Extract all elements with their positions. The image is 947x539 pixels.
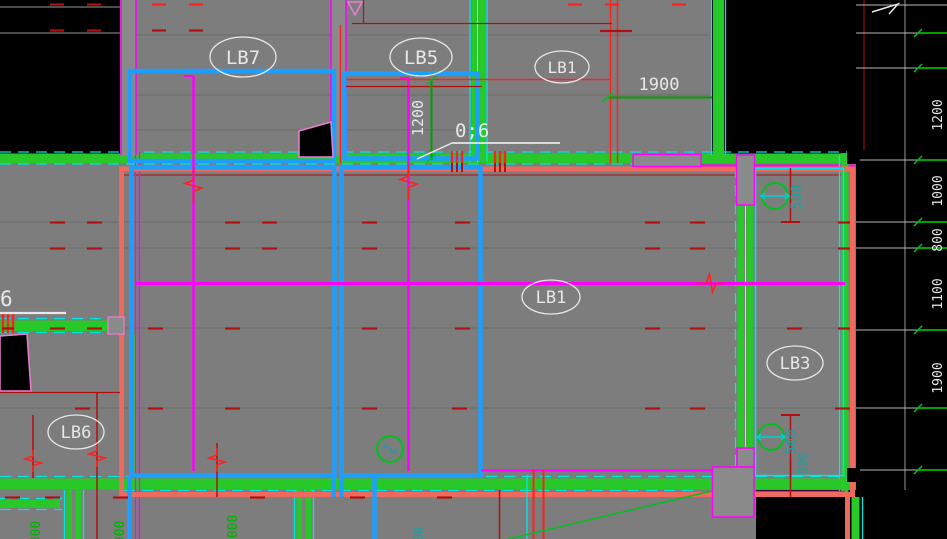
- margin-dim-0: 1200: [931, 99, 946, 130]
- margin-dim-3: 1100: [931, 278, 946, 309]
- bottom-dim-1: 1000: [113, 521, 128, 539]
- right-margin-dims: 1200 1000 800 1100 1900: [856, 4, 947, 474]
- bottom-dim-2: 1000: [226, 515, 241, 539]
- label-lb5: LB5: [404, 47, 438, 69]
- wall-v-topright: [713, 0, 724, 155]
- margin-dim-2: 800: [931, 228, 946, 251]
- slab-main: [0, 155, 856, 490]
- cad-canvas[interactable]: 1900 1200 1200 1000 800 1100 1900: [0, 0, 947, 539]
- label-lb1-mid: LB1: [536, 288, 567, 308]
- wall-v-right: [841, 153, 849, 497]
- note-left: 6: [0, 287, 13, 311]
- bottom-dim-0: 1000: [29, 521, 44, 539]
- label-lb6: LB6: [61, 423, 92, 443]
- label-lb7: LB7: [226, 47, 260, 69]
- wall-above-segment: [633, 155, 701, 167]
- corner-notch-bottom: [847, 468, 860, 482]
- note-mid: 0;6: [455, 120, 489, 142]
- label-lb3: LB3: [780, 354, 811, 374]
- margin-dim-4: 1900: [931, 362, 946, 393]
- wall-v-mid: [738, 167, 745, 478]
- column-left: [108, 317, 124, 334]
- opening-left: [0, 334, 31, 391]
- column-bottom: [713, 467, 755, 517]
- col-dim-top: 500: [789, 184, 805, 209]
- dim-text-1200: 1200: [409, 100, 427, 136]
- margin-dim-1: 1000: [931, 175, 946, 206]
- col-dim-corner: 500: [796, 452, 810, 474]
- corner-notch-top: [847, 151, 860, 164]
- column-top: [737, 155, 755, 205]
- dim-text-1900: 1900: [639, 75, 680, 95]
- col-dim-bottom: 500: [784, 429, 800, 454]
- label-lb1-top: LB1: [548, 58, 577, 77]
- wall-stub-bottom-right: [845, 497, 863, 539]
- cad-viewport[interactable]: 1900 1200 1200 1000 800 1100 1900: [0, 0, 947, 539]
- bottom-dim-3: 500: [412, 527, 427, 539]
